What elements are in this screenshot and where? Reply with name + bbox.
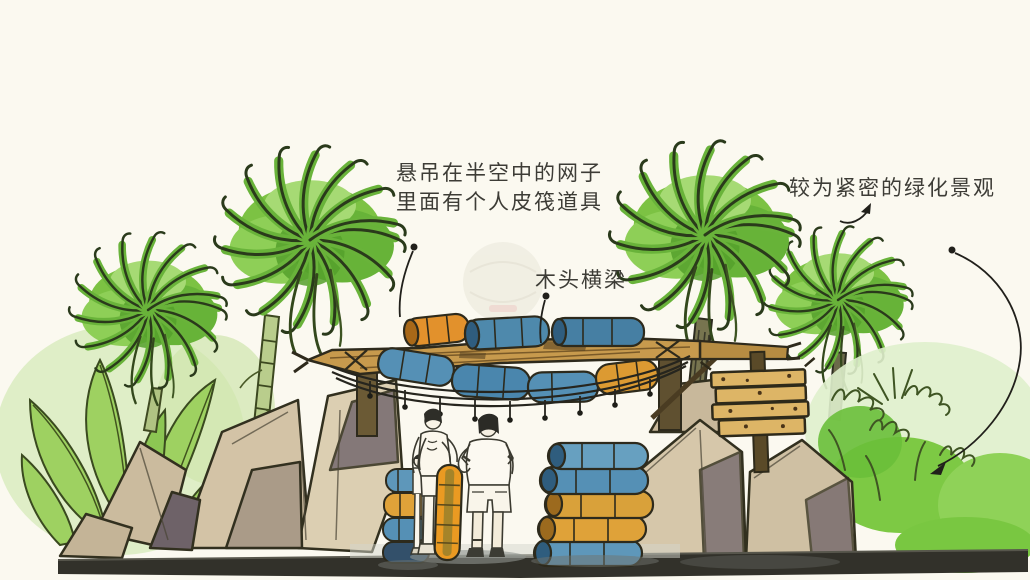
annotation-beam: 木头横梁	[535, 266, 627, 295]
man-white-shirt	[458, 414, 513, 557]
annotation-greenery: 较为紧密的绿化景观	[789, 174, 996, 203]
watermark	[463, 242, 543, 327]
sketch-canvas: 悬吊在半空中的网子 里面有个人皮筏道具 较为紧密的绿化景观 木头横梁	[0, 0, 1030, 580]
raft-stack-large	[534, 443, 653, 566]
annotation-net: 悬吊在半空中的网子 里面有个人皮筏道具	[396, 159, 603, 217]
annotation-net-line1: 悬吊在半空中的网子	[396, 159, 603, 188]
orange-board	[434, 465, 462, 561]
illustration	[0, 0, 1030, 580]
annotation-net-line2: 里面有个人皮筏道具	[396, 188, 603, 217]
